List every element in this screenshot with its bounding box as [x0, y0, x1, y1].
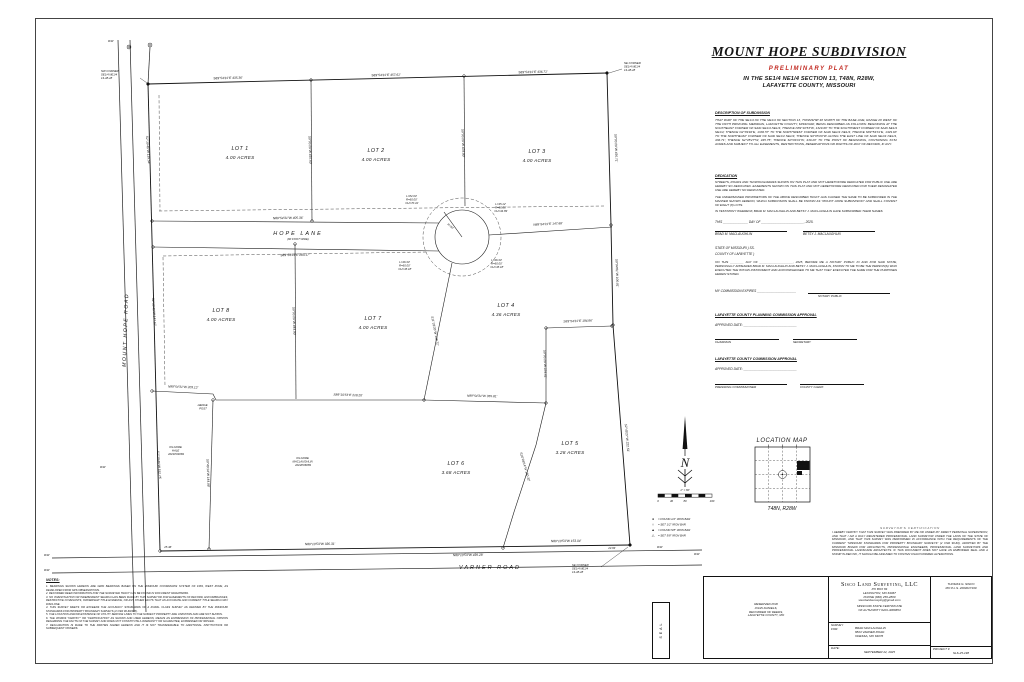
secretary-label: SECRETARY — [793, 340, 811, 344]
legend-item: = FOUND 1/2" IRON BAR — [658, 517, 690, 521]
lot-3-name: LOT 3 — [529, 149, 546, 155]
legend-item: = SET 1/2" IRON BAR — [658, 523, 686, 527]
set-five-eighths-symbol: △ — [652, 534, 655, 538]
bearing-label: S0°05'29"W 435.60' — [308, 136, 313, 165]
lot-1-name: LOT 1 — [232, 146, 249, 152]
plat-location-line1: IN THE SE1/4 NE1/4 SECTION 13, T48N, R28… — [703, 76, 915, 82]
mount-hope-road-label: MOUNT HOPE ROAD — [122, 293, 131, 367]
lot-6-name: LOT 6 — [448, 461, 465, 467]
project-label: PROJECT # — [933, 648, 950, 652]
bearing-label: N89°54'31"E 147.68' — [533, 221, 563, 227]
scale-tick: 80 — [683, 499, 687, 503]
description-body: THAT PART OF THE SE1/4 OF THE NE1/4 OF S… — [715, 118, 897, 147]
varner-road-lines — [52, 550, 702, 573]
set-half-inch-symbol: ○ — [652, 523, 654, 527]
rw-label: R/W — [108, 39, 114, 43]
lot-5-acres: 3.28 ACRES — [556, 450, 586, 455]
note-item: 3. NO INVESTIGATION OR INDEPENDENT SEARC… — [46, 596, 228, 607]
dedication-testimony: IN TESTIMONY WHEREOF, BRAD M. MACLAUGHLI… — [715, 209, 897, 213]
chairman-label: CHAIRMAN — [715, 340, 731, 344]
setback-lines — [159, 95, 604, 386]
location-map: LOCATION MAP SITE T48N, R28W — [755, 438, 810, 512]
planning-approved-date: APPROVED DATE: _________________________… — [715, 323, 797, 327]
presiding-commissioner-label: PRESIDING COMMISSIONER — [715, 385, 756, 389]
title-block: RESERVED FOR JOHN DANIELS, RECORDER OF D… — [703, 576, 992, 659]
curve-data-labels: L=82.03' R=60.00' CH=70.41' L=35.12' R=6… — [398, 194, 508, 271]
bearing-label: S2°39'46"W 147.67' — [151, 298, 157, 327]
lot-4-acres: 4.36 ACRES — [492, 312, 522, 317]
bearing-label: S89°10'53"E 218.20' — [333, 393, 363, 398]
notes-list: 1. BEARINGS SHOWN HEREON ARE GRID BEARIN… — [46, 585, 228, 631]
ss-mark: SS. — [749, 246, 755, 250]
hope-lane-width-label: (60 FOOT WIDE) — [287, 237, 309, 241]
bearing-label: S2°39'46"W 139.54' — [145, 136, 151, 165]
bearing-label: S2°39'46"W 152.75' — [156, 451, 162, 480]
plat-title: MOUNT HOPE SUBDIVISION — [703, 44, 915, 60]
lot-7-acres: 4.00 ACRES — [359, 325, 389, 330]
lot-labels: LOT 1 4.00 ACRES LOT 2 4.00 ACRES LOT 3 … — [207, 146, 586, 475]
bearing-label: N89°54'31"W 405.36' — [273, 216, 304, 220]
nw-corner-label: NW CORNER SE1/4 NE1/4 13-48-28 — [101, 69, 119, 80]
bearing-label: N89°10'53"W 153.04' — [551, 539, 582, 543]
survey-date: SEPTEMBER 22, 2025 — [829, 651, 930, 655]
varner-road-label: VARNER ROAD — [459, 565, 521, 571]
note-item: 4. THIS SURVEY MEETS OR EXCEEDS THE ACCU… — [46, 606, 228, 613]
surveyor-license: MO P.L.S. 2003017190 — [931, 587, 991, 591]
lot-1-acres: 4.00 ACRES — [226, 155, 256, 160]
curve-label: L=46.33' R=60.00' CH=45.18' — [490, 258, 504, 269]
notes-heading: NOTES: — [46, 578, 60, 582]
surveyor-cell: THOMAS G. SISCO MO P.L.S. 2003017190 — [931, 577, 991, 646]
plat-subtitle: PRELIMINARY PLAT — [703, 66, 915, 72]
ne-corner-label: NE CORNER SE1/4 NE1/4 13-48-28 — [624, 61, 642, 72]
distance-label: 25.46' — [163, 545, 172, 549]
owner-label: KILGORE MACLAUGHLIN 2022P06089 — [293, 456, 314, 467]
plat-location-line2: LAFAYETTE COUNTY, MISSOURI — [703, 83, 915, 89]
bearing-label: S0°49'14"W 144.08' — [206, 459, 211, 488]
dedication-heading: DEDICATION — [715, 174, 737, 178]
found-half-inch-symbol: ● — [652, 517, 654, 521]
bearing-label: S0°05'29"W 428.80' — [461, 129, 466, 158]
notary-state-line: STATE OF MISSOURI ) SS. — [715, 246, 755, 250]
owner-label: KILGORE HALE 2021P04069 — [167, 445, 184, 456]
north-letter: N — [680, 455, 691, 470]
planning-approval-heading: LAFAYETTE COUNTY PLANNING COMMISSION APP… — [715, 313, 817, 317]
project-number: SLS-25-198 — [931, 652, 991, 656]
note-item: 6. THE WORDS "CERTIFY" OR "CERTIFICATION… — [46, 617, 228, 624]
owner1-name: BRAD M. MACLAUGHLIN — [715, 232, 752, 236]
lot-2-name: LOT 2 — [368, 148, 385, 154]
lot-8-name: LOT 8 — [213, 308, 230, 314]
scale-ratio: 1" = 80' — [680, 488, 690, 492]
rw-label: R/W — [44, 568, 50, 572]
county-clerk-label: COUNTY CLERK — [800, 385, 823, 389]
commission-expires: MY COMMISSION EXPIRES __________________… — [715, 289, 796, 293]
scale-tick: 40 — [670, 499, 674, 503]
bearing-label: S0°04'01"W 100.01' — [615, 259, 620, 288]
seal-box: SEAL — [652, 602, 670, 659]
location-map-township: T48N, R28W — [768, 506, 798, 512]
notary-body: ON THIS ________ DAY OF ________________… — [715, 261, 897, 277]
lot-4-name: LOT 4 — [498, 303, 515, 309]
state-of-missouri: STATE OF MISSOURI ) — [715, 246, 749, 250]
notary-county-line: COUNTY OF LAFAYETTE ) — [715, 252, 754, 256]
description-heading: DESCRIPTION OF SUBDIVISION — [715, 111, 770, 115]
dedication-para1: STREETS, ROADS AND THOROUGHFARES SHOWN O… — [715, 181, 897, 193]
company-certificate2: OF AUTHORITY #201-3006653 — [829, 609, 930, 613]
bearing-label: S89°54'31"E 283.17' — [280, 253, 310, 257]
curve-label: L=82.03' R=60.00' CH=70.41' — [405, 194, 419, 205]
bearing-label: N89°54'31"W 203.12' — [168, 384, 199, 389]
note-item: 7. DECLARATION IS MADE TO THE PARTIES NA… — [46, 624, 228, 631]
dedication-para2: THE UNDERSIGNED PROPRIETORS OF THE ABOVE… — [715, 196, 897, 208]
curve-label: L=35.12' R=60.00' CH=34.89' — [494, 202, 508, 213]
note-item: 1. BEARINGS SHOWN HEREON ARE GRID BEARIN… — [46, 585, 228, 592]
company-cell: Sisco Land Surveying, LLC PO BOX 84 LEXI… — [829, 577, 931, 623]
found-five-eighths-symbol: ▲ — [651, 528, 654, 532]
bearing-label: S89°54'31"E 436.71' — [518, 70, 548, 75]
rw-label: R/W — [100, 465, 106, 469]
rw-label: R/W — [44, 553, 50, 557]
bearing-label: S89°54'31"E 435.36' — [213, 76, 243, 81]
bearing-label: N89°10'53"W 336.31' — [305, 542, 336, 546]
recorder-cell: RESERVED FOR JOHN DANIELS, RECORDER OF D… — [704, 577, 829, 658]
note-item: 5. THE LOCATION AND/OR EXISTENCE OF UTIL… — [46, 613, 228, 617]
date-cell: DATE: SEPTEMBER 22, 2025 — [829, 646, 931, 658]
scale-bar: 1" = 80' 0 40 80 160 — [657, 488, 715, 503]
hedge-post-label: HEDGE POST — [198, 403, 209, 410]
rw-label: R/W — [694, 552, 700, 556]
notary-public-label: NOTARY PUBLIC — [818, 294, 842, 298]
bearing-label: S89°54'31"E 194.86' — [563, 318, 593, 323]
certification-body: I HEREBY CERTIFY THAT THIS SURVEY WAS PR… — [832, 531, 988, 557]
culdesac-radius-label: R=50' — [447, 222, 456, 230]
legend-item: = FOUND 5/8" IRON BAR — [658, 528, 690, 532]
location-map-title: LOCATION MAP — [757, 438, 808, 444]
owner2-name: BETSY J. MACLAUGHLIN — [803, 232, 841, 236]
bearing-label: S2°45'27"W 222.51' — [624, 424, 630, 453]
lot-2-acres: 4.00 ACRES — [362, 157, 392, 162]
commission-approval-heading: LAFAYETTE COUNTY COMMISSION APPROVAL — [715, 357, 797, 361]
lot-8-acres: 4.00 ACRES — [207, 317, 237, 322]
bearing-label: N89°54'31"W 355.81' — [467, 394, 498, 399]
bearing-label: S0°05'29"W 444.90' — [292, 307, 297, 336]
bearing-label: S0°05'29"W 436.71' — [614, 134, 619, 163]
client-address2: ODESSA, MO 64076 — [855, 635, 886, 639]
reserved-line4: LAFAYETTE COUNTY, MO — [704, 614, 828, 618]
legend-item: = SET 5/8" IRON BAR — [658, 534, 686, 538]
lot-6-acres: 3.68 ACRES — [442, 470, 472, 475]
scale-tick: 0 — [657, 499, 659, 503]
scale-tick: 160 — [710, 499, 715, 503]
lot-5-name: LOT 5 — [562, 441, 580, 447]
date-label: DATE: — [831, 647, 840, 651]
project-cell: PROJECT # SLS-25-198 — [931, 646, 991, 658]
monument-markers — [127, 43, 631, 552]
bearing-label: N89°10'53"W 439.28' — [453, 553, 484, 557]
north-arrow: N — [678, 416, 692, 487]
survey-for-label2: FOR: — [831, 628, 843, 632]
distance-label: 23.84' — [607, 546, 616, 550]
lot-7-name: LOT 7 — [365, 316, 383, 322]
lot-3-acres: 4.00 ACRES — [523, 158, 553, 163]
se-corner-label: SE CORNER SE1/4 NE1/4 13-48-28 — [572, 563, 589, 574]
site-label: SITE — [800, 464, 806, 468]
dedication-date-line: THIS ______________ DAY OF _____________… — [715, 220, 897, 224]
adjoining-owner-labels: KILGORE HALE 2021P04069 KILGORE MACLAUGH… — [167, 403, 314, 467]
survey-for-cell: SURVEY FOR: BRAD MACLAUGHLIN 8823 VARNER… — [829, 623, 931, 646]
commission-approved-date: APPROVED DATE: _________________________… — [715, 367, 797, 371]
monument-legend: ● = FOUND 1/2" IRON BAR ○ = SET 1/2" IRO… — [651, 517, 690, 538]
seal-label: SEAL — [659, 608, 663, 652]
bearing-label: S89°54'31"E 457.61' — [371, 73, 401, 78]
curve-label: L=46.33' R=60.00' CH=45.18' — [398, 260, 412, 271]
rw-label: R/W — [657, 545, 663, 549]
company-email: siscolandsurveying@gmail.com — [829, 599, 930, 603]
bearing-label: S0°05'29"W 224.61' — [543, 350, 548, 379]
